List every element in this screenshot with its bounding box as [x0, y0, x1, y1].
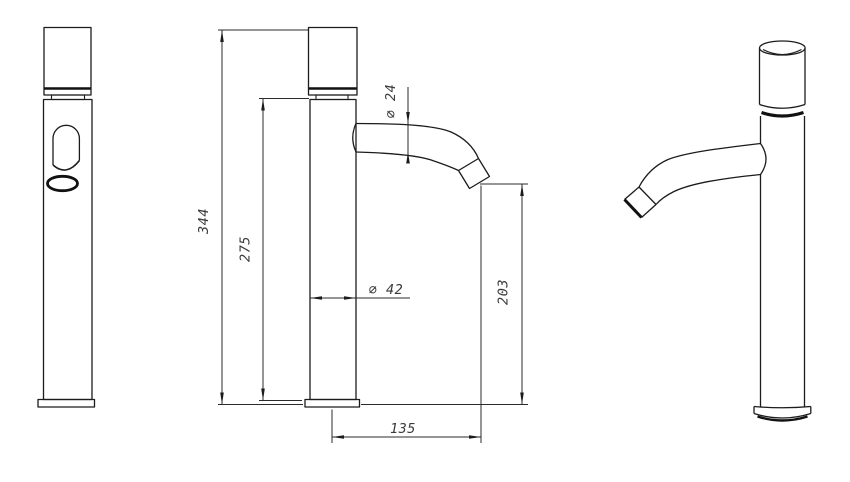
- persp-cap-bottom-arc: [760, 105, 806, 109]
- dim-arrow-up: [520, 184, 524, 196]
- dim-total-height-label: 344: [196, 208, 212, 235]
- dim-arrow-left: [310, 296, 322, 300]
- side-spout-cut-line: [459, 159, 479, 171]
- side-base-plate: [305, 400, 360, 408]
- persp-base-top-edge: [754, 407, 811, 408]
- dim-upper-body-height: 275: [238, 99, 310, 401]
- persp-handle-band: [762, 113, 804, 117]
- technical-drawing-canvas: 344 275 ∅ 24 ∅ 42: [0, 0, 850, 482]
- dim-upper-body-extension-lines: [259, 99, 309, 401]
- front-spout-outlet-ellipse: [48, 176, 78, 190]
- dim-spout-reach-label: 135: [390, 421, 416, 437]
- dim-total-height: 344: [196, 30, 308, 405]
- dim-arrow-down: [261, 389, 265, 401]
- side-body-column: [310, 100, 356, 400]
- dim-arrow-down: [520, 393, 524, 405]
- dim-spout-diameter-label: ∅ 24: [383, 84, 399, 119]
- persp-spout-cut-line: [639, 187, 656, 205]
- front-neck: [52, 95, 85, 100]
- dim-arrow-up: [406, 152, 410, 164]
- persp-spout-bottom-edge: [656, 175, 761, 205]
- technical-drawing-page: 344 275 ∅ 24 ∅ 42: [0, 0, 850, 482]
- dim-arrow-right: [344, 296, 356, 300]
- front-spout-silhouette: [53, 125, 79, 165]
- dim-arrow-down: [406, 112, 410, 124]
- dim-body-diameter-label: ∅ 42: [369, 282, 404, 298]
- dim-arrow-up: [261, 99, 265, 111]
- front-base-plate: [38, 400, 95, 408]
- dim-body-diameter: ∅ 42: [310, 282, 410, 300]
- dim-arrow-up: [220, 30, 224, 42]
- faucet-perspective-view: [625, 41, 811, 421]
- persp-spout-root-arc: [761, 144, 767, 175]
- persp-spout-tip-sides: [625, 187, 657, 218]
- dim-outlet-height-label: 203: [496, 279, 512, 305]
- side-handle-cap: [309, 28, 358, 96]
- persp-cap-top-ellipse: [760, 41, 806, 55]
- dimension-annotations: 344 275 ∅ 24 ∅ 42: [196, 30, 528, 443]
- faucet-front-view: [38, 28, 95, 408]
- front-spout-cut-rim: [53, 161, 79, 171]
- persp-spout-top-edge: [639, 144, 761, 188]
- dim-upper-body-label: 275: [238, 236, 254, 262]
- persp-spout-outlet-edge: [625, 200, 642, 218]
- front-handle-cap: [44, 28, 91, 96]
- dim-arrow-right: [469, 435, 481, 439]
- front-body-column: [44, 100, 93, 400]
- dim-arrow-down: [220, 393, 224, 405]
- dim-arrow-left: [332, 435, 344, 439]
- side-neck: [316, 95, 348, 100]
